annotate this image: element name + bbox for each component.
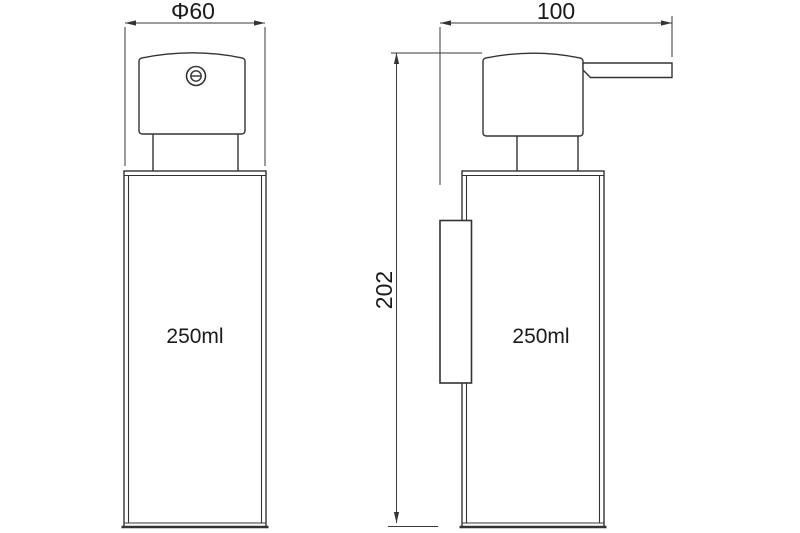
- side-depth-label: 100: [537, 0, 575, 24]
- front-view: Φ60 250ml: [122, 0, 269, 527]
- dimension-arrow-up-icon: [394, 53, 399, 64]
- dimension-arrow-right-icon: [254, 20, 265, 25]
- side-capacity-label: 250ml: [512, 325, 569, 348]
- front-pump-head: [139, 53, 245, 134]
- front-body-outline: [124, 171, 266, 527]
- dimension-arrow-right-icon: [661, 20, 672, 25]
- side-height-label: 202: [371, 271, 397, 309]
- spout: [583, 63, 672, 78]
- technical-drawing-canvas: Φ60 250ml 100: [0, 0, 800, 533]
- dimension-arrow-left-icon: [440, 20, 451, 25]
- side-view: 100 202 250ml: [371, 0, 672, 527]
- side-pump-head: [483, 53, 583, 136]
- dimension-arrow-down-icon: [394, 512, 399, 523]
- front-diameter-label: Φ60: [171, 0, 215, 24]
- front-capacity-label: 250ml: [166, 325, 223, 348]
- soap-dispenser-drawing: Φ60 250ml 100: [0, 0, 800, 533]
- dimension-arrow-left-icon: [125, 20, 136, 25]
- side-body-outline: [462, 171, 604, 527]
- wall-mount-bracket: [440, 221, 472, 384]
